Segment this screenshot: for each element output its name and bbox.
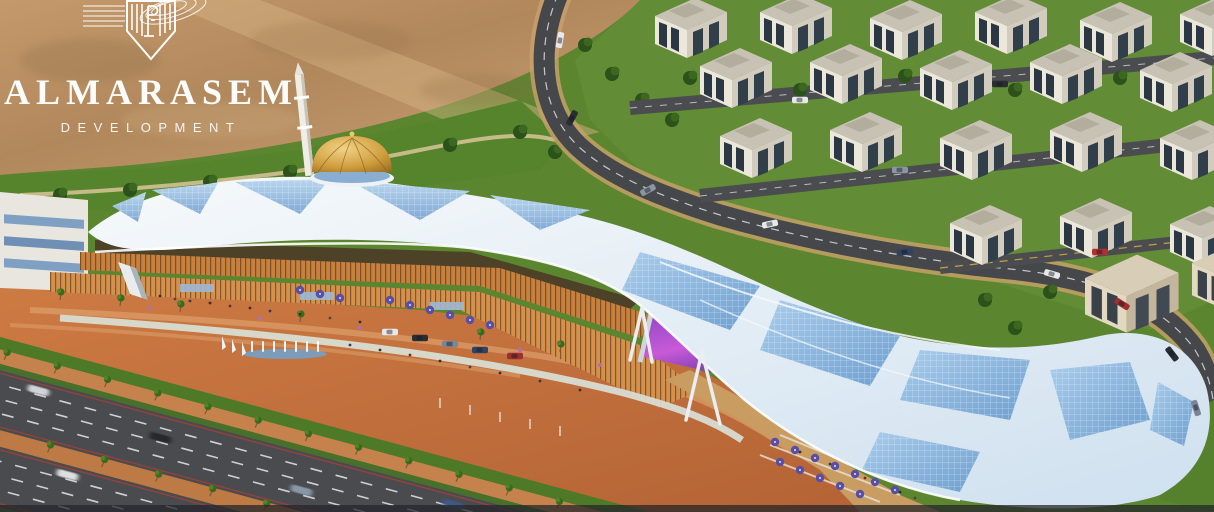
car <box>472 347 488 353</box>
car <box>412 335 428 341</box>
car <box>382 329 398 335</box>
brand-tagline: DEVELOPMENT <box>0 120 302 135</box>
car <box>892 167 908 173</box>
aerial-rendering: ALMARASEM DEVELOPMENT <box>0 0 1214 512</box>
car <box>442 341 458 347</box>
car <box>992 81 1008 87</box>
brand-name: ALMARASEM <box>0 74 302 110</box>
tree <box>978 293 993 308</box>
logo: ALMARASEM DEVELOPMENT <box>0 0 302 135</box>
car <box>1092 249 1108 255</box>
bottom-edge-shadow <box>0 505 1214 512</box>
tree <box>1008 321 1023 336</box>
logo-mark-icon <box>81 0 221 62</box>
car <box>792 97 808 103</box>
car <box>507 353 523 359</box>
